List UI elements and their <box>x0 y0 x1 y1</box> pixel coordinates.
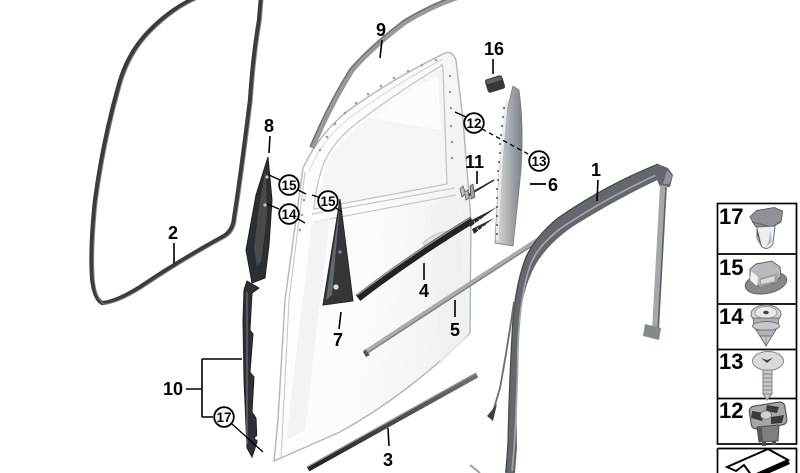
svg-text:17: 17 <box>216 410 231 425</box>
svg-text:14: 14 <box>281 207 297 222</box>
svg-text:5: 5 <box>450 320 460 340</box>
svg-text:17: 17 <box>719 204 743 229</box>
svg-text:15: 15 <box>719 255 743 280</box>
svg-text:9: 9 <box>376 20 386 40</box>
svg-text:3: 3 <box>383 450 393 470</box>
svg-text:15: 15 <box>320 194 336 209</box>
svg-text:8: 8 <box>264 116 274 136</box>
svg-text:12: 12 <box>719 398 743 423</box>
svg-text:1: 1 <box>591 160 601 180</box>
svg-text:13: 13 <box>531 154 547 169</box>
svg-text:10: 10 <box>163 379 183 399</box>
svg-text:14: 14 <box>719 304 744 329</box>
svg-text:12: 12 <box>466 116 481 131</box>
svg-text:16: 16 <box>484 39 504 59</box>
svg-text:6: 6 <box>548 175 558 195</box>
svg-text:2: 2 <box>168 223 178 243</box>
svg-text:15: 15 <box>281 178 297 193</box>
svg-text:4: 4 <box>419 281 429 301</box>
svg-text:11: 11 <box>465 152 484 172</box>
svg-text:13: 13 <box>719 349 743 374</box>
svg-text:7: 7 <box>333 330 343 350</box>
